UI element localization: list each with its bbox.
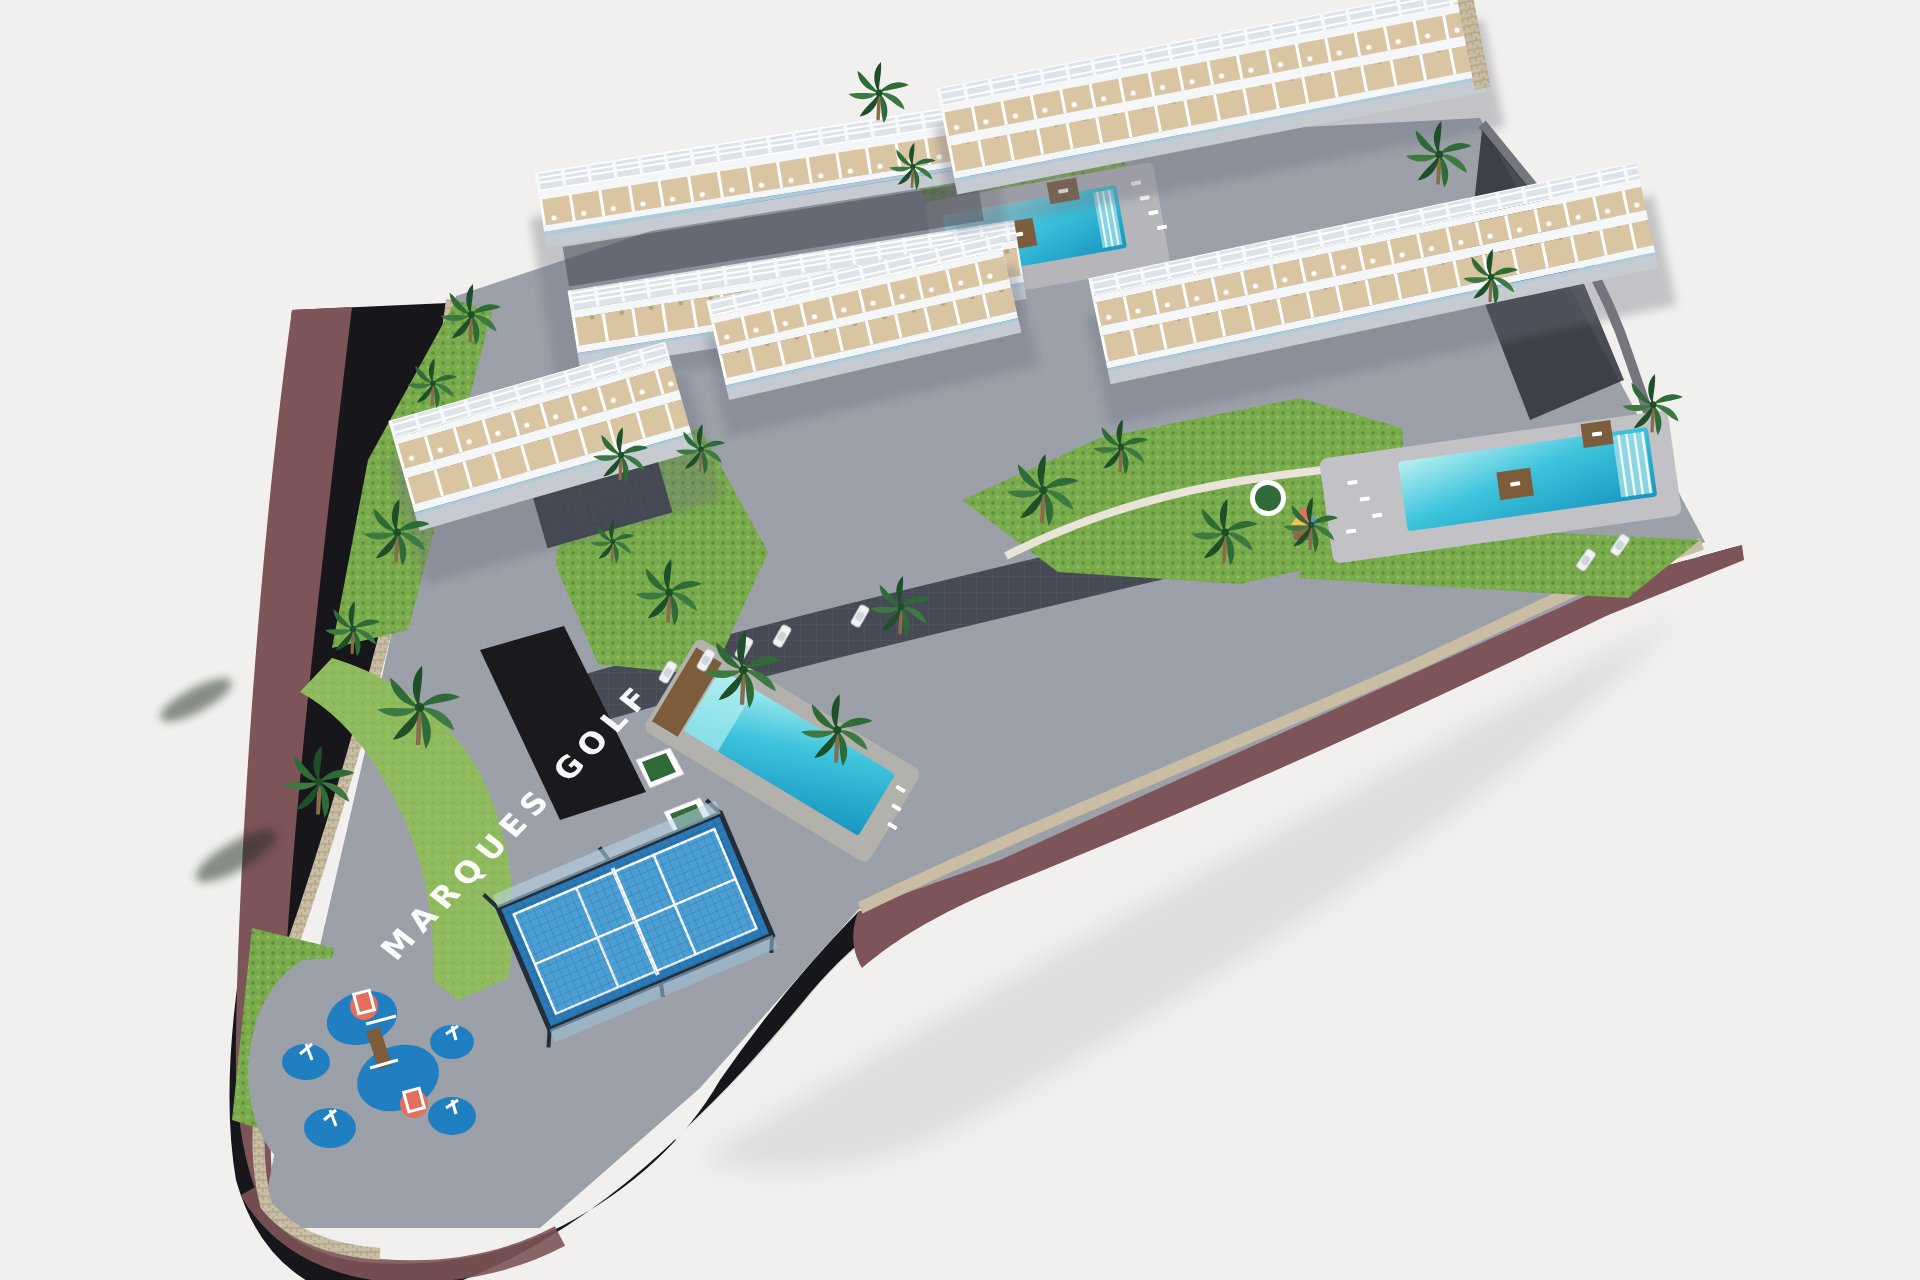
site-plan-render: MARQUES GOLF xyxy=(0,0,1920,1280)
render-canvas: MARQUES GOLF xyxy=(0,0,1920,1280)
